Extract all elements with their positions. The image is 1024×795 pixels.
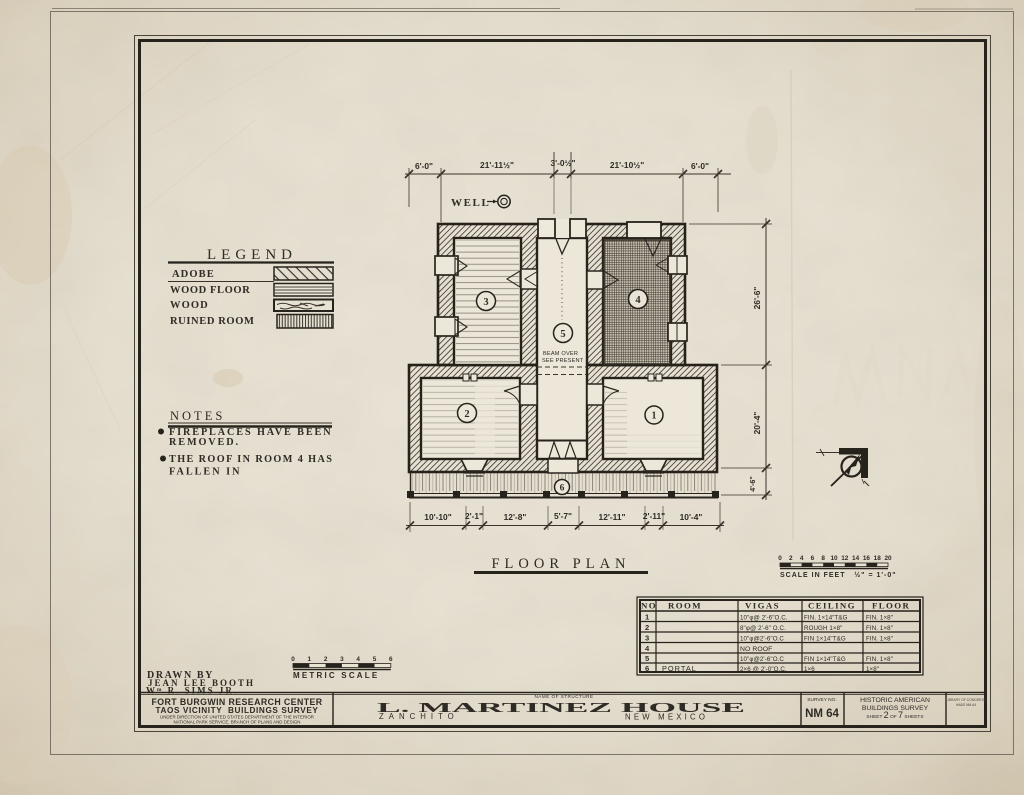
svg-text:10'-10": 10'-10": [424, 512, 451, 522]
svg-text:12'-8": 12'-8": [504, 512, 527, 522]
svg-text:1: 1: [308, 656, 312, 663]
svg-text:REMOVED.: REMOVED.: [169, 437, 240, 448]
svg-text:5: 5: [373, 656, 377, 663]
svg-text:2: 2: [789, 555, 793, 562]
svg-text:CEILING: CEILING: [808, 601, 856, 611]
svg-text:2: 2: [464, 409, 469, 420]
svg-text:10"φ@2'-6"O.C: 10"φ@2'-6"O.C: [740, 636, 784, 643]
svg-text:4: 4: [635, 295, 641, 306]
svg-text:NEW MEXICO: NEW MEXICO: [625, 713, 708, 722]
svg-text:10: 10: [830, 555, 838, 562]
svg-text:WELL: WELL: [451, 197, 490, 209]
svg-text:FIN. 1×14"T&G: FIN. 1×14"T&G: [804, 615, 848, 622]
svg-text:FALLEN IN: FALLEN IN: [169, 467, 241, 478]
svg-text:FIN. 1×8": FIN. 1×8": [866, 615, 893, 622]
svg-text:METRIC SCALE: METRIC SCALE: [293, 671, 379, 680]
svg-text:20: 20: [884, 555, 892, 562]
svg-text:SCALE IN FEET ½" = 1'-0": SCALE IN FEET ½" = 1'-0": [780, 571, 897, 579]
svg-text:SEE PRESENT: SEE PRESENT: [542, 358, 584, 364]
svg-text:BUILDINGS SURVEY: BUILDINGS SURVEY: [862, 705, 929, 712]
svg-text:5'-7": 5'-7": [554, 511, 572, 521]
svg-text:4'-6": 4'-6": [748, 476, 757, 492]
svg-text:HABS NM-64: HABS NM-64: [956, 703, 976, 707]
svg-text:2: 2: [324, 656, 328, 663]
svg-text:2×6 @ 2'-0"O.C.: 2×6 @ 2'-0"O.C.: [740, 666, 787, 673]
svg-text:1×8": 1×8": [866, 666, 879, 673]
svg-text:4: 4: [356, 656, 360, 663]
svg-text:FIN. 1×8": FIN. 1×8": [866, 625, 893, 632]
svg-text:BEAM OVER: BEAM OVER: [543, 351, 578, 357]
svg-text:LIBRARY OF CONGRESS: LIBRARY OF CONGRESS: [946, 698, 987, 702]
svg-text:ROUGH 1×8": ROUGH 1×8": [804, 625, 842, 632]
svg-text:2'-1": 2'-1": [465, 511, 483, 521]
svg-text:21'-10½": 21'-10½": [610, 160, 644, 170]
svg-text:ADOBE: ADOBE: [172, 269, 215, 280]
svg-text:6'-0": 6'-0": [415, 161, 433, 171]
svg-text:18: 18: [874, 555, 882, 562]
svg-text:10'-4": 10'-4": [680, 512, 703, 522]
svg-text:SURVEY NO.: SURVEY NO.: [807, 697, 836, 703]
svg-text:12'-11": 12'-11": [599, 512, 626, 522]
svg-text:12: 12: [841, 555, 849, 562]
svg-text:10"φ@ 2'-6"O.C.: 10"φ@ 2'-6"O.C.: [740, 615, 788, 622]
svg-text:1×6: 1×6: [804, 666, 815, 673]
svg-text:HISTORIC AMERICAN: HISTORIC AMERICAN: [860, 697, 930, 704]
svg-text:FLOOR: FLOOR: [872, 601, 910, 611]
svg-text:FIN 1×14"T&G: FIN 1×14"T&G: [804, 636, 846, 643]
svg-text:2: 2: [645, 623, 649, 632]
svg-text:NATIONAL PARK SERVICE, BRANCH: NATIONAL PARK SERVICE, BRANCH OF PLANS A…: [174, 720, 301, 725]
svg-text:FIN 1×14"T&G: FIN 1×14"T&G: [804, 656, 846, 663]
svg-text:10"φ@2'-6"O.C: 10"φ@2'-6"O.C: [740, 656, 784, 663]
svg-text:6'-0": 6'-0": [691, 161, 709, 171]
svg-text:NAME OF STRUCTURE: NAME OF STRUCTURE: [534, 694, 593, 699]
svg-text:Wᵐ R. SIMS JR.: Wᵐ R. SIMS JR.: [146, 686, 238, 696]
svg-text:ROOM: ROOM: [668, 601, 702, 611]
svg-text:FIN. 1×8": FIN. 1×8": [866, 636, 893, 643]
svg-text:6: 6: [389, 656, 393, 663]
svg-text:21'-11½": 21'-11½": [480, 160, 514, 170]
svg-text:1: 1: [652, 411, 657, 422]
svg-text:NOTES: NOTES: [170, 409, 225, 423]
svg-text:3: 3: [483, 297, 488, 308]
svg-text:16: 16: [863, 555, 871, 562]
svg-text:0: 0: [291, 656, 295, 663]
svg-text:LEGEND: LEGEND: [207, 247, 297, 263]
svg-text:FIN. 1×8": FIN. 1×8": [866, 656, 893, 663]
svg-text:6: 6: [645, 664, 649, 673]
svg-text:RUINED ROOM: RUINED ROOM: [170, 316, 254, 327]
svg-text:THE ROOF IN ROOM 4 HAS: THE ROOF IN ROOM 4 HAS: [169, 454, 333, 465]
svg-text:FLOOR PLAN: FLOOR PLAN: [491, 556, 630, 572]
svg-text:14: 14: [852, 555, 860, 562]
svg-text:0: 0: [778, 555, 782, 562]
svg-text:NM 64: NM 64: [805, 708, 839, 720]
svg-text:8"φ@ 2'-6" O.C.: 8"φ@ 2'-6" O.C.: [740, 625, 786, 632]
svg-text:WOOD: WOOD: [170, 300, 209, 311]
svg-text:NO ROOF: NO ROOF: [740, 646, 772, 653]
svg-text:3: 3: [645, 634, 649, 643]
svg-text:26'-6": 26'-6": [752, 287, 762, 310]
svg-text:5: 5: [560, 329, 565, 340]
svg-text:8: 8: [821, 555, 825, 562]
svg-text:2'-11": 2'-11": [643, 511, 665, 521]
svg-text:4: 4: [800, 555, 804, 562]
svg-text:6: 6: [560, 484, 565, 494]
svg-text:20'-4": 20'-4": [752, 412, 762, 435]
svg-text:3'-0½": 3'-0½": [550, 158, 575, 168]
svg-text:WOOD FLOOR: WOOD FLOOR: [170, 285, 250, 296]
svg-text:NO: NO: [641, 601, 657, 611]
svg-text:VIGAS: VIGAS: [745, 601, 780, 611]
svg-text:6: 6: [811, 555, 815, 562]
svg-text:3: 3: [340, 656, 344, 663]
svg-text:PORTAL: PORTAL: [662, 664, 697, 673]
svg-text:ZANCHITO: ZANCHITO: [379, 712, 459, 721]
